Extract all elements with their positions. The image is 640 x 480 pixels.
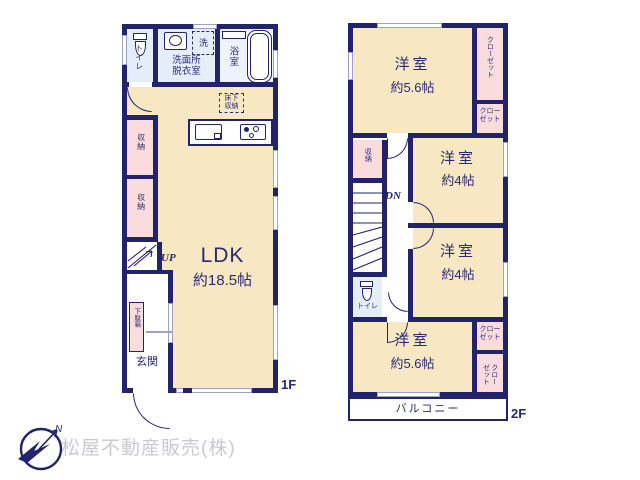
label-ldk-size: 約18.5帖 (170, 272, 275, 290)
toilet-tank-2f (360, 281, 373, 287)
window (377, 392, 440, 397)
label-room-mid-south-size: 約4帖 (413, 267, 503, 283)
compass-north-label: N (55, 424, 62, 436)
label-laundry: 洗 (199, 38, 208, 49)
label-room-mid-north: 洋室 (413, 150, 503, 168)
stove-burner (244, 127, 249, 132)
floor2-hall (387, 138, 408, 317)
label-storage-a: 収納 (136, 133, 146, 151)
window (193, 24, 217, 29)
window (273, 196, 278, 230)
sliding-door (168, 303, 173, 343)
label-room-mid-south: 洋室 (413, 243, 503, 261)
floor2-stairs (353, 183, 382, 272)
stove-burner (253, 126, 259, 132)
wall (153, 115, 158, 242)
linework-overlay (0, 0, 640, 480)
window (377, 23, 442, 28)
label-closet-south-east: クロー ゼット (481, 358, 498, 390)
door-arc-entry (133, 393, 170, 429)
label-floor2: 2F (511, 406, 526, 422)
label-room-south-size: 約5.6帖 (353, 356, 472, 372)
label-closet-north-east: クローゼット (485, 36, 493, 78)
washbasin-bowl (169, 35, 182, 46)
bathtub-inner (250, 33, 269, 80)
label-room-mid-north-size: 約4帖 (413, 173, 503, 189)
label-floor1: 1F (281, 377, 296, 393)
label-bath: 浴室 (227, 46, 238, 67)
label-toilet-2f: トイレ (353, 303, 382, 311)
door-opening (382, 292, 387, 312)
label-storage-2f: 収納 (363, 148, 371, 162)
entrance-step-line (146, 331, 173, 333)
label-underfloor: 床下 収納 (219, 95, 244, 112)
label-stairs-down: DN (385, 190, 401, 203)
wall (183, 388, 192, 393)
window (273, 50, 278, 78)
label-toilet-1f: トイレ (134, 44, 144, 71)
window (503, 262, 508, 297)
label-entrance: 玄関 (136, 356, 158, 369)
floor1-stairs (127, 242, 157, 270)
bath-counter (222, 31, 246, 39)
kitchen-faucet (214, 133, 221, 139)
label-shoe-cabinet: 下駄箱 (132, 308, 140, 328)
label-ldk: LDK (170, 243, 275, 268)
window (122, 35, 127, 65)
toilet-tank (133, 33, 147, 40)
label-balcony: バルコニー (348, 403, 508, 416)
label-room-north: 洋室 (353, 56, 472, 74)
label-room-north-size: 約5.6帖 (353, 80, 472, 96)
label-closet-north-small: クロー ゼット (477, 108, 503, 125)
label-washroom: 洗面所 脱衣室 (158, 55, 215, 78)
floorplan-canvas: トイレ 洗面所 脱衣室 洗 浴室 床下 収納 収納 収納 UP LDK 約18.… (0, 0, 640, 480)
label-room-south: 洋室 (353, 332, 472, 350)
label-closet-south-small: クロー ゼット (477, 326, 503, 343)
stove-burner (249, 133, 254, 138)
label-storage-b: 収納 (136, 193, 146, 211)
window (503, 142, 508, 177)
company-name: 松屋不動産販売(株) (61, 438, 236, 461)
window (273, 305, 278, 360)
window (273, 150, 278, 188)
